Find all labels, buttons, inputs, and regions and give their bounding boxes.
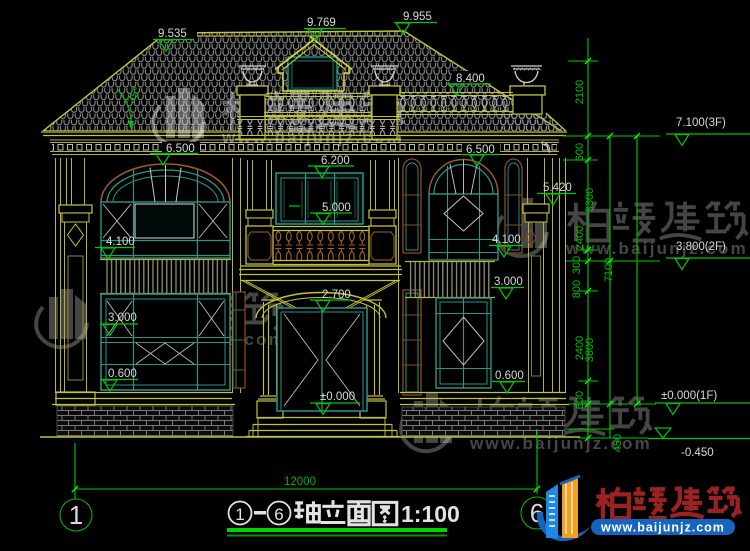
- svg-text:7.100(3F): 7.100(3F): [676, 117, 726, 129]
- svg-text:2.700: 2.700: [322, 289, 351, 301]
- svg-text:800: 800: [571, 280, 583, 298]
- svg-text:0.600: 0.600: [108, 368, 137, 380]
- svg-text:3300: 3300: [584, 188, 596, 212]
- svg-text:6: 6: [274, 505, 283, 524]
- svg-text:0.600: 0.600: [495, 370, 524, 382]
- svg-text:www.baijunjz.com: www.baijunjz.com: [600, 521, 725, 535]
- svg-text:3.000: 3.000: [108, 312, 137, 324]
- svg-text:9.535: 9.535: [158, 28, 187, 40]
- svg-text:2400: 2400: [574, 226, 586, 250]
- svg-text:600: 600: [574, 143, 586, 161]
- svg-text:1: 1: [235, 505, 244, 524]
- svg-text:5.000: 5.000: [322, 202, 351, 214]
- svg-text:1:100: 1:100: [401, 501, 460, 527]
- svg-text:5.420: 5.420: [543, 182, 572, 194]
- svg-text:-0.450: -0.450: [681, 447, 714, 459]
- svg-text:12000: 12000: [284, 476, 316, 488]
- svg-text:9.955: 9.955: [403, 11, 432, 23]
- svg-text:450: 450: [612, 434, 624, 452]
- svg-text:3.000: 3.000: [494, 276, 523, 288]
- svg-text:3800: 3800: [584, 338, 596, 362]
- svg-text:4.100: 4.100: [492, 234, 521, 246]
- svg-text:1: 1: [69, 500, 83, 530]
- svg-text:9.769: 9.769: [307, 17, 336, 29]
- svg-text:600: 600: [574, 391, 586, 409]
- svg-text:6.200: 6.200: [321, 155, 350, 167]
- svg-text:3.800(2F): 3.800(2F): [676, 241, 726, 253]
- svg-text:±0.000: ±0.000: [320, 391, 355, 403]
- svg-text:2100: 2100: [574, 80, 586, 104]
- svg-text:8.400: 8.400: [456, 73, 485, 85]
- svg-text:4.100: 4.100: [106, 236, 135, 248]
- svg-text:300: 300: [571, 256, 583, 274]
- svg-text:7100: 7100: [603, 258, 615, 282]
- svg-text:±0.000(1F): ±0.000(1F): [661, 390, 717, 402]
